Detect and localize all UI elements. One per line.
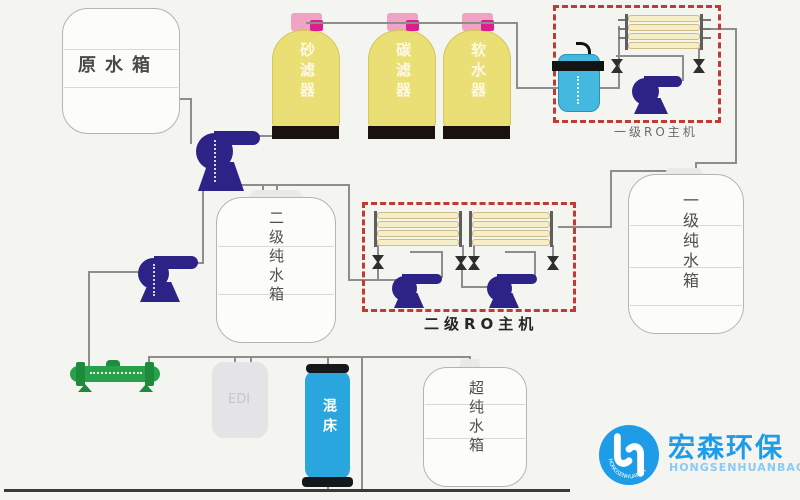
stage1-pure-water-tank-label: 一级纯水箱 bbox=[677, 192, 701, 292]
pipe-segment bbox=[88, 271, 90, 368]
uv-flange bbox=[76, 362, 85, 386]
precision-filter-band bbox=[552, 61, 604, 71]
ro-stage2-label: 二级RO主机 bbox=[424, 313, 538, 334]
filter-base bbox=[272, 126, 339, 139]
tank-seam bbox=[630, 305, 742, 306]
softener-filter-label: 软水器 bbox=[468, 42, 489, 102]
mixed-bed-label: 混床 bbox=[319, 398, 339, 438]
drain-line bbox=[4, 489, 570, 492]
mixed-bed-bottom-cap bbox=[302, 477, 353, 487]
ro-stage1-label: 一级RO主机 bbox=[614, 123, 698, 140]
tank-seam bbox=[64, 49, 178, 50]
pipe-segment bbox=[190, 98, 192, 144]
process-flow-diagram: 原水箱 砂滤器 碳滤器 软水器 一级RO主机 bbox=[0, 0, 800, 500]
raw-water-tank-label: 原水箱 bbox=[78, 51, 159, 77]
filter-base bbox=[368, 126, 435, 139]
pump-marks bbox=[153, 264, 155, 296]
pipe-segment bbox=[695, 162, 737, 164]
uv-marks bbox=[90, 372, 142, 374]
edi-module-label: EDI bbox=[228, 392, 250, 407]
pipe-filter-manifold bbox=[306, 22, 518, 24]
tank-seam bbox=[64, 87, 178, 88]
carbon-filter-label: 碳滤器 bbox=[393, 42, 414, 102]
filter-base bbox=[443, 126, 510, 139]
mixed-bed-top-cap bbox=[306, 364, 349, 373]
ultra-pure-water-tank-label: 超纯水箱 bbox=[466, 380, 487, 456]
company-logo-mark: HONGSENHUANBAO bbox=[598, 424, 660, 486]
pipe-segment bbox=[735, 28, 737, 164]
sand-filter-label: 砂滤器 bbox=[297, 42, 318, 102]
stage2-pure-water-tank-label: 二级纯水箱 bbox=[266, 210, 287, 305]
pump-marks bbox=[214, 140, 216, 182]
pipe-polish-manifold bbox=[148, 356, 470, 358]
pipe-segment bbox=[610, 170, 612, 228]
precision-filter-marks bbox=[577, 76, 579, 104]
logo-circle-icon: HONGSENHUANBAO bbox=[598, 424, 660, 486]
pipe-segment bbox=[516, 22, 518, 88]
pipe-segment bbox=[348, 184, 350, 281]
pipe-segment bbox=[88, 271, 138, 273]
pipe-segment bbox=[610, 170, 671, 172]
pipe-segment bbox=[361, 356, 363, 490]
company-logo-cn: 宏森环保 bbox=[668, 426, 784, 465]
company-logo-en: HONGSENHUANBAO bbox=[669, 461, 800, 474]
uv-flange bbox=[145, 362, 154, 386]
pipe-segment bbox=[202, 184, 204, 264]
